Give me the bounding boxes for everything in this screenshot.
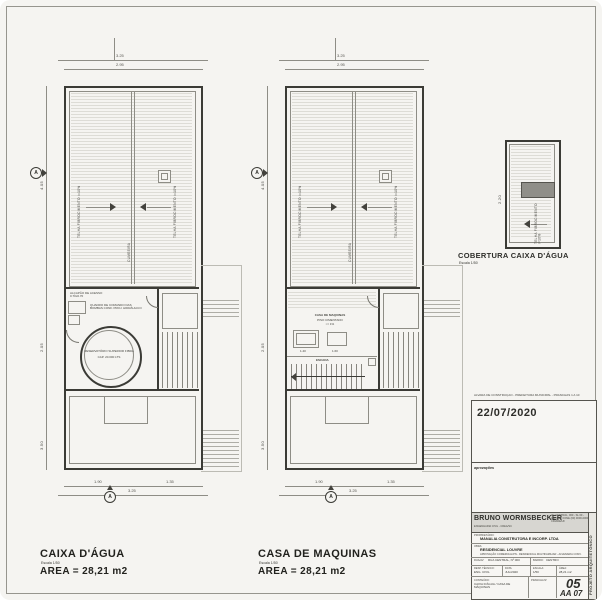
plan1-tank-label-1: RESERVATÓRIO SUPERIOR FIBRA xyxy=(84,350,134,353)
titleblock-col-divider-2 xyxy=(502,565,503,576)
plan2-ridge-label: CUMEEIRA xyxy=(349,228,353,262)
plan1-scale-note: Escala 1/50 xyxy=(41,561,60,565)
plan2-dim-top-total: 3.25 xyxy=(337,54,345,58)
titleblock-work-sub: APROVAÇÃO COMERCIAL/PN - RESIDENCIAL MUL… xyxy=(480,553,581,556)
plan3-dim-left: 2.20 xyxy=(498,178,502,204)
plan2-dim-left-line xyxy=(267,86,268,470)
plan1-top-marker xyxy=(114,38,115,61)
plan2-slope-arrow-right-stem xyxy=(368,207,392,208)
plan1-dim-left-line xyxy=(46,86,47,470)
plan1-dim-bottom-total: 3.25 xyxy=(128,489,136,493)
plan1-lower-bottom-wall xyxy=(64,389,199,391)
plan1-dim-left-bot: 3.50 xyxy=(40,420,44,450)
plan2-roof-label-right: TELHA FIBROCIMENTO i=10% xyxy=(395,176,399,238)
plan1-dim-left-mid: 2.05 xyxy=(40,322,44,352)
plan1-bottom-marker-arrow-icon xyxy=(107,485,113,490)
plan3-hatch-box xyxy=(521,182,555,198)
plan1-dim-top-total: 3.25 xyxy=(116,54,124,58)
plan1-lower-stair-lines xyxy=(203,430,239,468)
plan2-dim-bottom-total: 3.25 xyxy=(349,489,357,493)
plan1-bottom-section-marker: A xyxy=(104,491,116,503)
titleblock-area-small: 28,21 m2 xyxy=(559,571,572,574)
plan2-floor-drain-icon xyxy=(368,358,376,366)
plan1-dim-top-inner: 2.95 xyxy=(116,63,124,67)
plan1-section-marker-arrow-icon xyxy=(42,169,47,177)
plan2-dim-bottom-line2 xyxy=(279,495,429,496)
titleblock-date-small: JUL/2020 xyxy=(505,571,518,574)
plan2-lower-bottom-wall xyxy=(285,389,420,391)
plan1-ridge-line-b xyxy=(134,92,135,284)
plan1-slope-arrow-left-icon xyxy=(110,203,116,211)
plan2-dim-bottom-seg2: 1.35 xyxy=(387,480,395,484)
plan2-dim-160: 1.60 xyxy=(332,350,338,353)
plan1-section-marker: A xyxy=(30,167,42,179)
titleblock-top-note: ALVARÁ DE CONSTRUÇÃO - PREFEITURA MUNICI… xyxy=(474,394,592,397)
titleblock-sheet-label: PRANCHA Nº xyxy=(531,579,547,582)
titleblock-district-label: BAIRRO: xyxy=(533,559,544,562)
titleblock-firm-sub: ENGENHARIA CIVIL - CREA/SC xyxy=(474,525,512,528)
plan2-slope-arrow-left-icon xyxy=(331,203,337,211)
plan2-stair-centerline xyxy=(291,376,365,377)
plan1-dim-bottom-seg1: 1.90 xyxy=(94,480,102,484)
plan2-lower-stair-lines xyxy=(424,430,460,468)
plan2-lower-top-wall xyxy=(285,287,420,289)
plan1-dim-bottom-line2 xyxy=(58,495,208,496)
titleblock-work: RESIDENCIAL LOUVRE xyxy=(480,548,523,552)
plan2-equipment-box-2 xyxy=(327,332,347,346)
titleblock-addr: RUA CENTRAL, Nº 000 xyxy=(488,559,520,562)
titleblock-firm-name: BRUNO WORMSBECKER xyxy=(474,515,562,522)
plan2-dim-top-inner-line xyxy=(285,69,424,70)
plan2-top-marker xyxy=(335,38,336,61)
plan1-slope-arrow-right-icon xyxy=(140,203,146,211)
plan1-dim-bottom-seg2: 1.35 xyxy=(166,480,174,484)
plan1-roof-drain-inner-icon xyxy=(161,173,168,180)
plan1-equipment-box-2 xyxy=(68,315,80,325)
plan2-shaft-stair-treads xyxy=(383,332,419,388)
plan3-slope-arrow-icon xyxy=(524,220,530,228)
plan2-stair-arrow-icon xyxy=(291,373,296,381)
titleblock-content: CAIXA D'ÁGUA / CASA DE MÁQUINAS xyxy=(474,583,524,590)
plan1-lower-top-wall xyxy=(64,287,199,289)
titleblock-col-divider-1 xyxy=(530,557,531,565)
plan1-dim-bottom-line1 xyxy=(64,486,203,487)
plan1-hatch-note: ALÇAPÃO DE ACESSO 0.70x0.70 xyxy=(70,292,114,299)
titleblock-col-divider-4 xyxy=(556,565,557,576)
plan2-dim-top-inner: 2.95 xyxy=(337,63,345,67)
plan2-lower-slab-box xyxy=(325,396,369,424)
titleblock-addr-label: RUA/AV: xyxy=(474,559,484,562)
titleblock-owner: MANALIA CONSTRUTORA E INCORP. LTDA xyxy=(480,537,559,541)
plan2-stair-label: ESCADA xyxy=(316,359,329,362)
plan1-area-text: AREA = 28,21 m2 xyxy=(40,566,128,577)
plan2-section-marker-arrow-icon xyxy=(263,169,268,177)
titleblock-firm-info: AV. CENTRAL, 000 - SL 00 - CENTRO FONE (… xyxy=(551,514,591,523)
plan1-lower-slab-box xyxy=(104,396,148,424)
titleblock-sheet-code: AA 07 xyxy=(560,589,582,598)
plan1-ridge-label: CUMEEIRA xyxy=(128,228,132,262)
titleblock-scale-small: 1/50 xyxy=(533,571,539,574)
plan2-corridor-line xyxy=(287,356,377,357)
plan2-dim-left-mid: 2.05 xyxy=(261,322,265,352)
plan2-dim-bottom-seg1: 1.90 xyxy=(315,480,323,484)
plan2-slope-arrow-left-stem xyxy=(307,207,331,208)
plan2-title: CASA DE MAQUINAS xyxy=(258,548,376,560)
plan1-stair-treads xyxy=(162,332,198,388)
drawing-sheet: 3.25 2.95 TELHA FIBROCIMENTO i=10% TELHA… xyxy=(0,0,602,600)
plan2-shaft-room xyxy=(383,293,419,329)
plan2-dim-140: 1.40 xyxy=(300,350,306,353)
plan2-louver-lines xyxy=(424,300,460,317)
plan2-equipment-box-inner xyxy=(296,333,316,345)
plan1-louver-lines xyxy=(203,300,239,317)
titleblock-col-divider-3 xyxy=(530,565,531,576)
plan1-equip-note: QUADRO DE COMANDO DAS BOMBAS CONF. PROJ.… xyxy=(90,304,144,311)
plan2-ridge-line-b xyxy=(355,92,356,284)
plan1-tank-label-2: CAP. 20.000 LTS xyxy=(84,356,134,359)
titleblock-side-text: PROJETO ARQUITETÔNICO xyxy=(589,515,593,595)
plan2-slope-arrow-right-icon xyxy=(361,203,367,211)
plan1-roof-label-left: TELHA FIBROCIMENTO i=10% xyxy=(78,176,82,238)
plan1-roof-label-right: TELHA FIBROCIMENTO i=10% xyxy=(174,176,178,238)
plan2-roof-drain-inner-icon xyxy=(382,173,389,180)
plan1-dim-top-total-line xyxy=(58,60,208,61)
plan2-bottom-section-marker: A xyxy=(325,491,337,503)
plan2-upper-hatch xyxy=(288,292,376,310)
plan2-roof-label-left: TELHA FIBROCIMENTO i=10% xyxy=(299,176,303,238)
titleblock-resp: ENG. CIVIL xyxy=(474,571,490,574)
titleblock-col-divider-5 xyxy=(528,576,529,598)
titleblock-date: 22/07/2020 xyxy=(477,407,537,419)
plan1-equipment-box xyxy=(68,301,86,314)
plan1-slope-arrow-left-stem xyxy=(86,207,110,208)
plan1-slope-arrow-right-stem xyxy=(147,207,171,208)
plan2-section-marker: A xyxy=(251,167,263,179)
plan3-roof-label: TELHA FIBROCIMENTO i=10% xyxy=(535,200,542,244)
titleblock-row-divider-1 xyxy=(471,543,588,544)
titleblock-col-divider-6 xyxy=(556,576,557,598)
plan2-room-sub2: i = 1% xyxy=(298,323,362,326)
plan2-dim-top-total-line xyxy=(279,60,429,61)
plan2-area-text: AREA = 28,21 m2 xyxy=(258,566,346,577)
plan1-title: CAIXA D'ÁGUA xyxy=(40,548,125,560)
plan1-dim-top-inner-line xyxy=(64,69,203,70)
plan2-dim-left-bot: 3.50 xyxy=(261,420,265,450)
plan2-dim-bottom-line1 xyxy=(285,486,424,487)
plan2-room-label: CASA DE MAQUINAS xyxy=(298,314,362,317)
plan3-title: COBERTURA CAIXA D'ÁGUA xyxy=(458,251,569,260)
plan2-scale-note: Escala 1/50 xyxy=(259,561,278,565)
titleblock-approvals-label: aprovações xyxy=(474,466,494,470)
plan2-bottom-marker-arrow-icon xyxy=(328,485,334,490)
plan1-shaft-room xyxy=(162,293,198,329)
plan3-scale-note: Escala 1/50 xyxy=(459,261,478,265)
titleblock-district: CENTRO xyxy=(546,559,559,562)
